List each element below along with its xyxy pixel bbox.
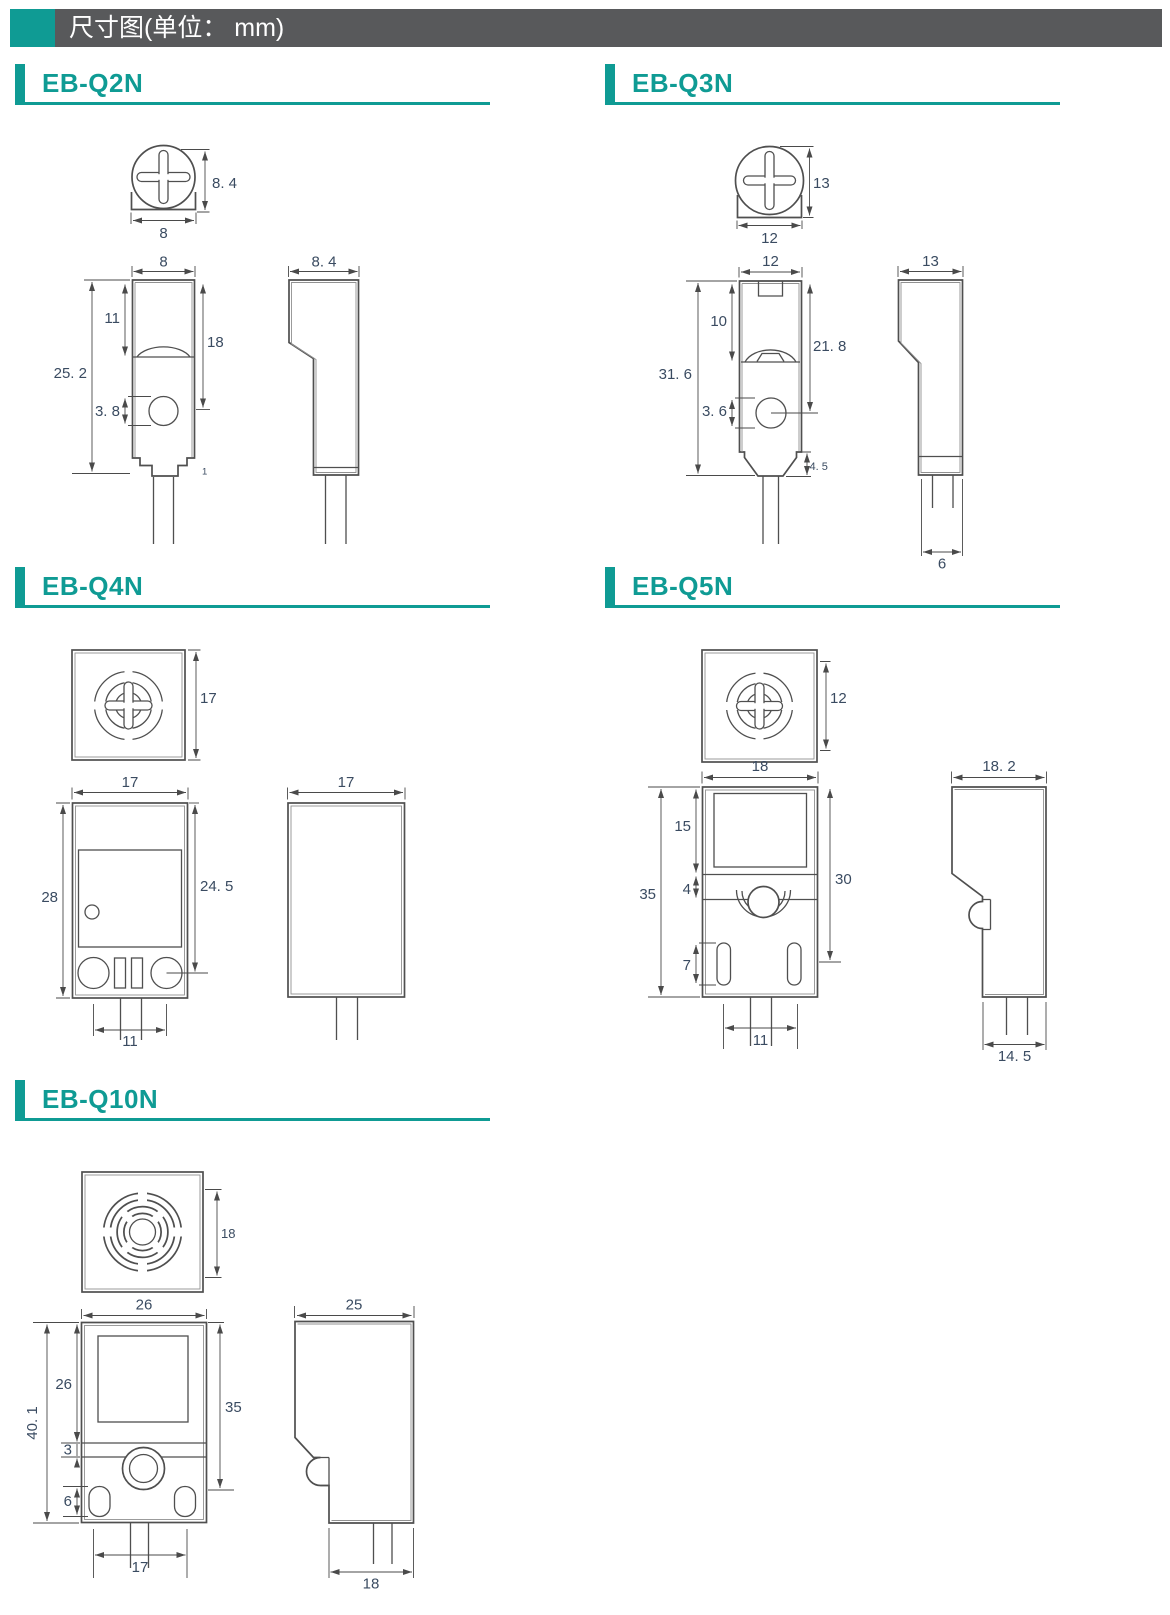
q2n-top-width-dim: 8 (159, 225, 167, 242)
q10n-side-dimensions: 25 18 (295, 1297, 415, 1593)
q10n-top-outline (82, 1172, 203, 1292)
section-header-eb-q4n: EB-Q4N (15, 567, 490, 608)
q5n-front-gap-dim: 4 (683, 881, 691, 898)
q10n-front-outline (82, 1323, 207, 1569)
q5n-front-upper-dim: 15 (674, 818, 691, 835)
eb-q10n-side-view: 25 18 (280, 1295, 435, 1595)
q5n-side-width-dim: 18. 2 (982, 758, 1015, 775)
q2n-front-dimensions: 8 25. 2 11 18 3. 8 1 (54, 254, 224, 478)
eb-q5n-side-view: 18. 2 14. 5 (930, 755, 1080, 1070)
eb-q10n-front-view: 26 40. 1 26 3 6 35 17 (25, 1295, 250, 1585)
q2n-front-width-dim: 8 (159, 254, 167, 271)
q10n-front-slot-dim: 6 (64, 1493, 72, 1510)
q4n-front-dimensions: 17 28 24. 5 11 (41, 774, 233, 1050)
q2n-front-step-dim: 1 (202, 467, 207, 478)
q5n-top-outline (702, 650, 817, 762)
section-header-eb-q10n: EB-Q10N (15, 1080, 490, 1121)
dimension-diagram-page: 尺寸图(单位： mm) EB-Q2N EB-Q3N EB-Q4N EB-Q5N … (0, 0, 1170, 1615)
q2n-top-height-dim: 8. 4 (212, 175, 237, 192)
q2n-front-outline (133, 280, 195, 544)
q3n-top-height-dim: 13 (813, 175, 830, 192)
eb-q4n-front-view: 17 28 24. 5 11 (25, 775, 240, 1050)
q10n-front-bottom-dim: 17 (132, 1559, 149, 1576)
q10n-front-total-dim: 40. 1 (24, 1406, 41, 1439)
q3n-front-upper-dim: 10 (710, 313, 727, 330)
q5n-top-height-dim: 12 (830, 690, 847, 707)
q4n-front-outline (73, 803, 209, 1040)
q2n-side-width-dim: 8. 4 (311, 254, 336, 271)
eb-q3n-side-view: 13 6 (885, 255, 985, 577)
q10n-side-width-dim: 25 (346, 1297, 363, 1314)
q3n-side-width-dim: 13 (922, 253, 939, 270)
q10n-side-bottom-dim: 18 (363, 1576, 380, 1593)
q2n-front-lower-dim: 3. 8 (95, 403, 120, 420)
q3n-front-width-dim: 12 (762, 253, 779, 270)
q2n-front-mid-dim: 18 (207, 334, 224, 351)
q3n-front-lower-dim: 3. 6 (702, 403, 727, 420)
q3n-top-width-dim: 12 (761, 230, 778, 247)
q3n-front-total-dim: 31. 6 (659, 366, 692, 383)
q3n-side-outline (899, 280, 963, 508)
q5n-top-dimensions: 12 (820, 662, 847, 751)
q3n-side-dimensions: 13 6 (898, 253, 963, 573)
q4n-top-outline (72, 650, 185, 760)
section-accent-bar (605, 64, 615, 102)
q10n-top-dimensions: 18 (205, 1190, 235, 1278)
q4n-front-bottom-dim: 11 (122, 1033, 138, 1050)
q5n-front-width-dim: 18 (752, 758, 769, 775)
section-accent-bar (15, 64, 25, 102)
eb-q4n-side-view: 17 (270, 775, 420, 1050)
eb-q2n-side-view: 8. 4 (272, 255, 387, 547)
q5n-front-right-dim: 30 (835, 871, 852, 888)
q5n-side-bottom-dim: 14. 5 (998, 1048, 1031, 1065)
q4n-front-inner-dim: 24. 5 (200, 878, 233, 895)
q3n-side-bottom-dim: 6 (938, 556, 946, 573)
eb-q5n-front-view: 18 35 15 4 7 30 11 (625, 758, 860, 1055)
q10n-front-upper-dim: 26 (55, 1376, 72, 1393)
q10n-side-outline (295, 1322, 414, 1565)
section-label-eb-q10n: EB-Q10N (42, 1084, 158, 1115)
q5n-front-slot-dim: 7 (683, 957, 691, 974)
q4n-side-width-dim: 17 (338, 774, 355, 791)
q5n-front-total-dim: 35 (639, 886, 656, 903)
q5n-front-outline (703, 787, 818, 1046)
q4n-front-total-dim: 28 (41, 889, 58, 906)
page-title: 尺寸图(单位： mm) (55, 9, 1162, 47)
q4n-top-height-dim: 17 (200, 690, 217, 707)
section-label-eb-q4n: EB-Q4N (42, 571, 143, 602)
section-label-eb-q3n: EB-Q3N (632, 68, 733, 99)
q10n-front-gap-dim: 3 (64, 1442, 72, 1459)
section-label-eb-q5n: EB-Q5N (632, 571, 733, 602)
section-accent-bar (605, 567, 615, 605)
section-accent-bar (15, 567, 25, 605)
section-header-eb-q2n: EB-Q2N (15, 64, 490, 105)
q3n-front-dimensions: 12 31. 6 10 21. 8 3. 6 4. 5 (659, 253, 847, 477)
eb-q5n-top-view: 12 (688, 640, 848, 768)
eb-q4n-top-view: 17 (58, 640, 223, 768)
q2n-top-outline (132, 146, 196, 210)
eb-q2n-top-view: 8. 4 8 (95, 133, 255, 245)
q3n-front-mid-dim: 21. 8 (813, 338, 846, 355)
q3n-front-outline (740, 281, 819, 544)
eb-q2n-front-view: 8 25. 2 11 18 3. 8 1 (40, 255, 235, 547)
eb-q10n-top-view: 18 (68, 1158, 238, 1298)
q10n-top-height-dim: 18 (221, 1226, 235, 1241)
header-accent-square (10, 9, 55, 47)
section-label-eb-q2n: EB-Q2N (42, 68, 143, 99)
q10n-front-right-dim: 35 (225, 1399, 242, 1416)
q10n-front-width-dim: 26 (136, 1297, 153, 1314)
q5n-side-dimensions: 18. 2 14. 5 (952, 758, 1047, 1065)
eb-q3n-top-view: 13 12 (685, 133, 855, 248)
q2n-front-upper-dim: 11 (104, 310, 120, 327)
q10n-front-dimensions: 26 40. 1 26 3 6 35 17 (24, 1297, 242, 1579)
eb-q3n-front-view: 12 31. 6 10 21. 8 3. 6 4. 5 (645, 255, 850, 547)
q3n-front-step-dim: 4. 5 (810, 461, 828, 473)
q5n-front-bottom-dim: 11 (753, 1032, 769, 1049)
q4n-top-dimensions: 17 (188, 650, 217, 760)
q5n-side-outline (952, 787, 1046, 1035)
q2n-side-dimensions: 8. 4 (289, 254, 360, 278)
q4n-side-outline (288, 803, 405, 1040)
section-header-eb-q3n: EB-Q3N (605, 64, 1060, 105)
q4n-front-width-dim: 17 (122, 774, 139, 791)
q2n-side-outline (289, 280, 359, 544)
q4n-side-dimensions: 17 (288, 774, 406, 800)
q3n-top-outline (736, 147, 804, 218)
section-header-eb-q5n: EB-Q5N (605, 567, 1060, 608)
q2n-front-total-dim: 25. 2 (54, 365, 87, 382)
page-header: 尺寸图(单位： mm) (10, 9, 1162, 47)
section-accent-bar (15, 1080, 25, 1118)
